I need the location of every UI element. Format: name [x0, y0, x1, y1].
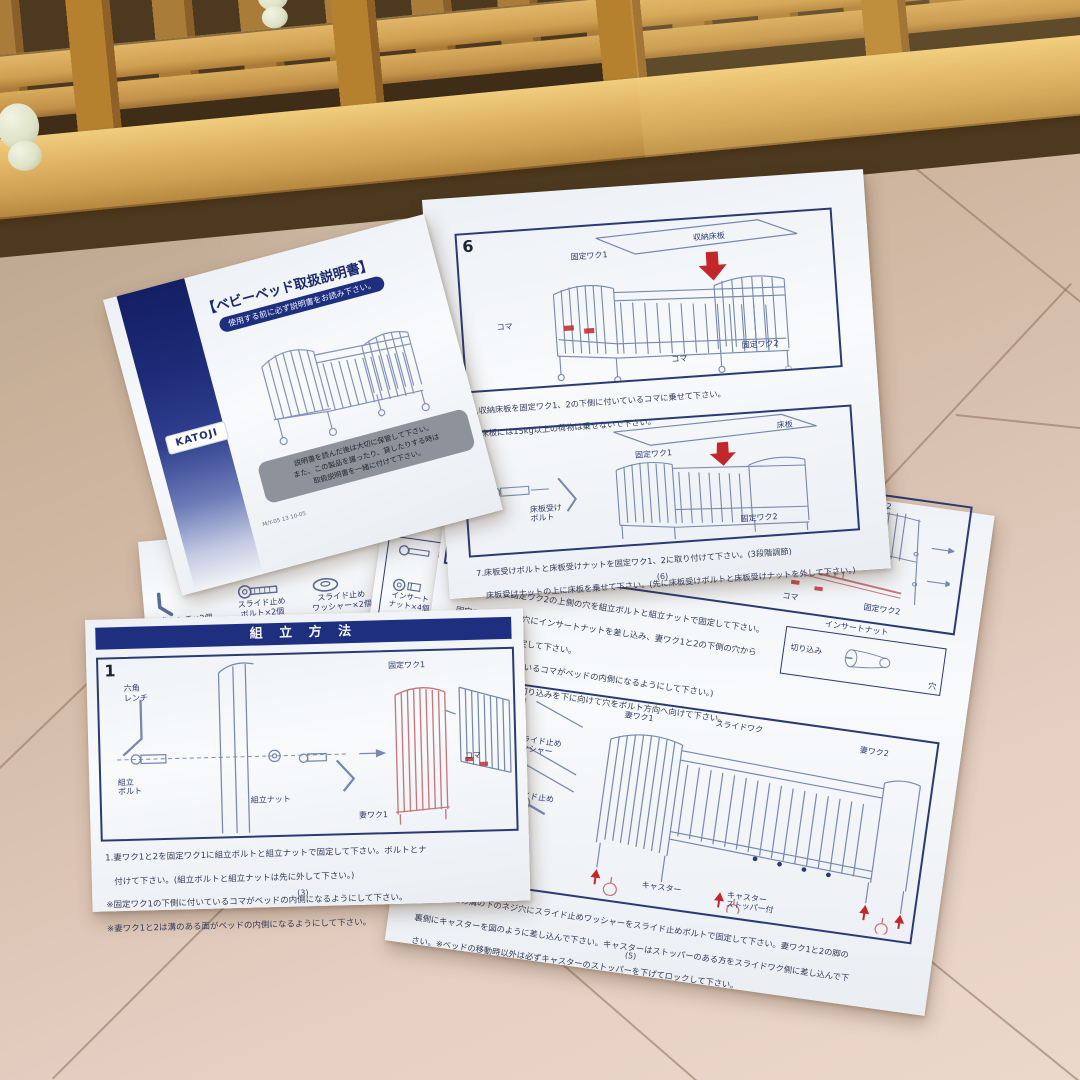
cover-doc-code: M/Y-05 13 10-05 [262, 511, 307, 528]
page-number: (3) [297, 888, 309, 897]
step-1-panel: 1 [96, 647, 519, 842]
hex-wrench-label: 六角 レンチ [124, 684, 148, 703]
step-1-caption: 1.妻ワク1と2を固定ワク1に組立ボルトと組立ナットで固定して下さい。ボルトとナ… [105, 831, 520, 949]
assembly-nut-label: 組立ナット [251, 795, 291, 805]
floor-board-bolt-label: 床板受け ボルト [530, 503, 563, 524]
floor-board-bolt-icon [397, 544, 432, 561]
part-item: インサート ナット×4個 [388, 577, 433, 614]
fixed-frame-1-label: 固定ワク1 [388, 660, 425, 670]
insert-nut-detail-box: 切り込み 穴 [780, 626, 947, 696]
floor-board-crib-diagram [462, 407, 858, 556]
notch-label: 切り込み [790, 643, 823, 657]
step-1-diagram [98, 649, 517, 840]
part-item: スライド止め ボルト×2個 [236, 581, 287, 620]
hex-wrench-icon [150, 589, 182, 618]
part-item: スライド止め ワッシャー×2個 [310, 573, 373, 613]
insert-nut-icon [833, 638, 915, 685]
manual-page-6-7: 6 収納床 [422, 169, 891, 599]
assembly-method-banner: 組 立 方 法 [95, 617, 511, 650]
tile-grout-line [956, 414, 1080, 429]
floor-board-label: 床板 [776, 419, 793, 430]
koma-label: コマ [465, 750, 481, 760]
hole-label: 穴 [928, 681, 937, 691]
photo-scene: 六角レンチ×2個 スライド止め ボルト×2個 スライド止め ワッシャー×2個 [0, 0, 1080, 1080]
page-number: (6) [657, 572, 669, 582]
manual-page-assembly: 組 立 方 法 1 [85, 609, 530, 912]
koma-label-bottom: コマ [671, 354, 688, 365]
storage-board-crib-diagram [457, 210, 841, 392]
assembly-bolt-label: 組立 ボルト [118, 777, 142, 796]
page-number: (5) [624, 951, 636, 961]
koma-label-left: コマ [496, 322, 513, 333]
step-6-panel: 6 収納床 [454, 207, 842, 393]
end-frame-1-label: 妻ワク1 [359, 811, 388, 821]
koma-label: コマ [782, 591, 799, 603]
part-label: スライド止め ワッシャー×2個 [311, 589, 372, 613]
